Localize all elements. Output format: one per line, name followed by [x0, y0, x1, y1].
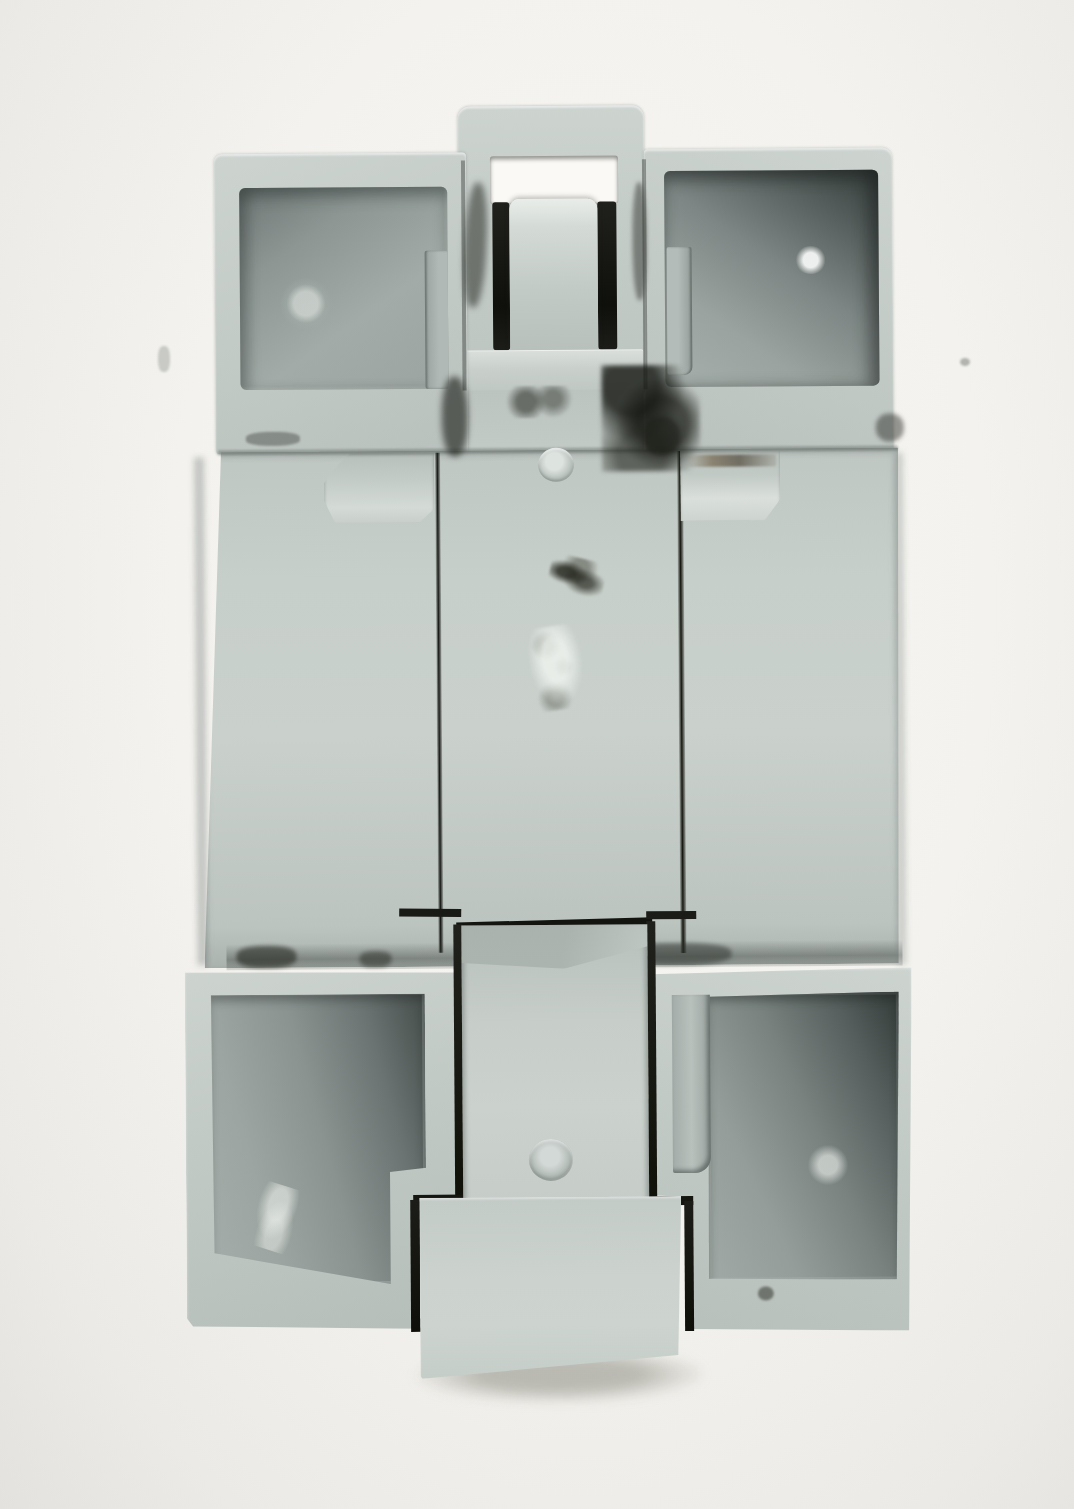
pocket-top-left-wear-mark: [279, 277, 333, 329]
grime-streak: [441, 376, 468, 456]
pocket-bottom-right-glint: [807, 1142, 849, 1188]
grime-blotch: [644, 417, 680, 455]
edge-shade-left: [194, 457, 208, 965]
top-clip-slot-right-icon: [597, 201, 617, 349]
grime-specks: [246, 432, 300, 446]
panel-scratch-light: [522, 622, 592, 714]
grime-specks: [506, 386, 574, 418]
top-clip-tongue: [509, 199, 598, 352]
photo-background: [0, 0, 1074, 1509]
grime-blotch: [236, 946, 296, 968]
pocket-top-left-recess: [239, 187, 448, 390]
grime-brown-line: [684, 454, 776, 467]
grime-blotch: [876, 413, 904, 441]
top-clip-window: [490, 155, 618, 204]
pin-mark-top-icon: [538, 448, 574, 482]
pocket-bottom-right-recess: [707, 991, 901, 1280]
pocket-bottom-right-speck: [758, 1286, 774, 1300]
grime-blotch: [359, 951, 391, 967]
grime-streak: [632, 182, 647, 300]
slider-gap-top-right: [646, 911, 696, 919]
slider-gap-top-left: [399, 908, 461, 917]
pocket-top-right-glint: [795, 246, 827, 274]
mold-tab-left: [324, 453, 434, 524]
pocket-top-right-ledge: [667, 247, 693, 375]
pocket-top-right-recess: [664, 170, 880, 387]
device: [0, 0, 1074, 1509]
top-clip-slot-left-icon: [492, 202, 510, 350]
pin-mark-bottom-icon: [529, 1139, 573, 1181]
slider-gap-outer-right: [684, 1201, 694, 1331]
slider-tongue: [419, 1196, 682, 1380]
pocket-bottom-right-ledge: [672, 995, 711, 1173]
pocket-top-left-ledge: [425, 251, 449, 389]
